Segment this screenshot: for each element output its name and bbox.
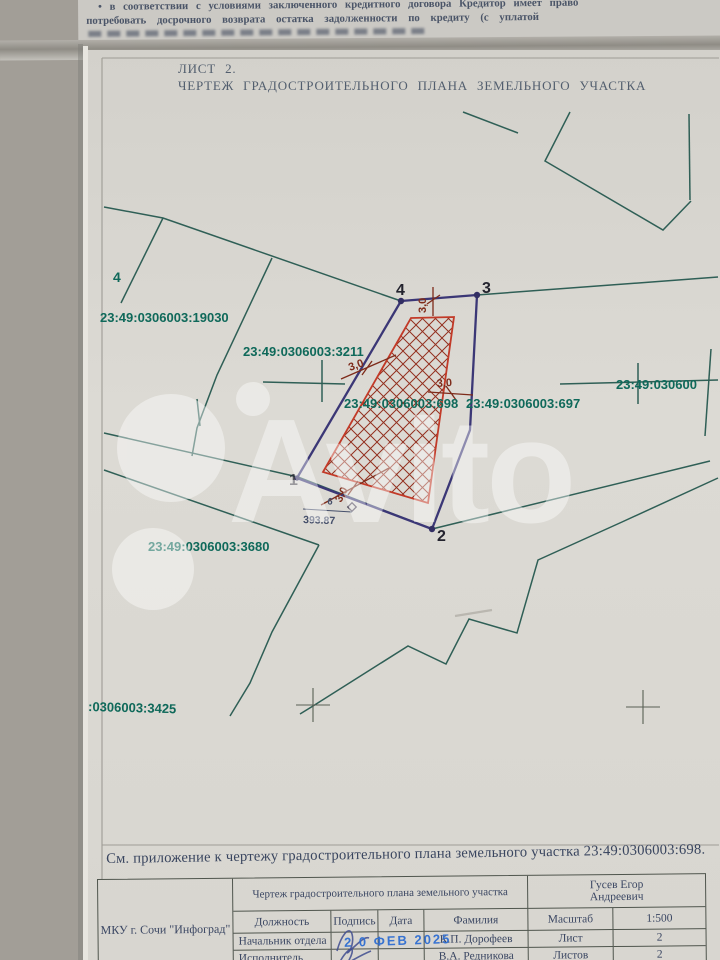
author-cell: Гусев Егор Андреевич bbox=[528, 874, 705, 909]
row2-date-cell bbox=[379, 949, 425, 960]
label-parcel-right-cut: 23:49:030600 bbox=[616, 377, 697, 392]
row2-position: Исполнитель bbox=[234, 950, 332, 960]
org-cell: МКУ г. Сочи "Инфоград" bbox=[98, 879, 234, 960]
vertex-1: 1 bbox=[289, 472, 298, 489]
dim-bottom: 3,0 bbox=[333, 485, 351, 504]
grid-crosses bbox=[296, 688, 660, 724]
benchmark-mark: 6 bbox=[326, 496, 333, 508]
col-signature: Подпись bbox=[331, 910, 378, 932]
label-parcel-19030: 23:49:0306003:19030 bbox=[100, 310, 229, 325]
vertex-3: 3 bbox=[482, 280, 491, 297]
dim-left: 3,0 bbox=[347, 357, 365, 374]
cadastral-plan-drawing: 3,0 3,0 3,0 3,0 393.87 6 23:49:0306003:1… bbox=[0, 0, 720, 960]
scale-label: Масштаб bbox=[528, 908, 613, 931]
label-parcel-698: 23:49:0306003:698 bbox=[344, 396, 458, 411]
doc-title-cell: Чертеж градостроительного плана земельно… bbox=[233, 876, 528, 912]
photographed-document: • в соответствии с условиями заключенног… bbox=[0, 0, 720, 960]
label-parcel-3425-cut: :0306003:3425 bbox=[88, 699, 177, 716]
col-date: Дата bbox=[378, 910, 424, 932]
row1-position: Начальник отдела bbox=[234, 933, 332, 951]
sheets-label: Листов bbox=[529, 947, 614, 960]
vertex-4: 4 bbox=[396, 282, 405, 299]
benchmark-line bbox=[303, 509, 352, 512]
sheet-label: Лист bbox=[529, 930, 614, 948]
row2-signature-cell bbox=[332, 949, 379, 960]
dim-right: 3,0 bbox=[436, 377, 452, 390]
label-stray-point: 4 bbox=[113, 269, 121, 285]
sheets-value: 2 bbox=[614, 946, 706, 960]
dim-top: 3,0 bbox=[417, 298, 429, 313]
col-name: Фамилия bbox=[424, 909, 528, 932]
label-parcel-3211: 23:49:0306003:3211 bbox=[243, 344, 364, 359]
col-position: Должность bbox=[233, 911, 331, 934]
vertex-2: 2 bbox=[437, 528, 446, 545]
label-parcel-3680: 23:49:0306003:3680 bbox=[148, 539, 269, 554]
author-name: Гусев Егор Андреевич bbox=[566, 879, 668, 904]
row2-name: В.А. Редникова bbox=[425, 948, 529, 960]
scale-value: 1:500 bbox=[613, 907, 705, 930]
pencil-smudge bbox=[455, 610, 492, 616]
label-parcel-697: 23:49:0306003:697 bbox=[466, 396, 580, 411]
sheet-value: 2 bbox=[614, 929, 706, 947]
benchmark-elevation: 393.87 bbox=[303, 514, 336, 527]
